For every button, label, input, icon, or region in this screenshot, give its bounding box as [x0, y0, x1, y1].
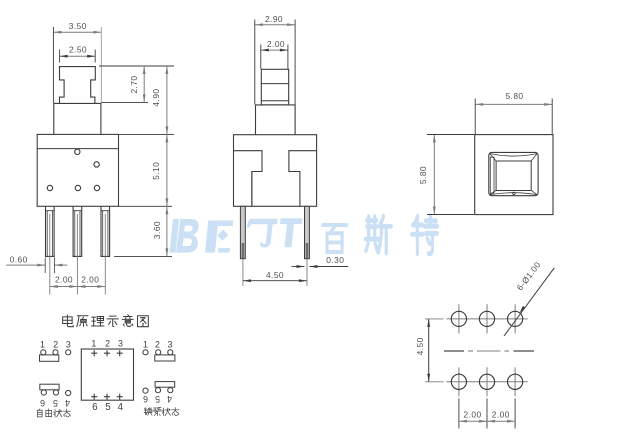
svg-text:6: 6: [40, 398, 45, 408]
svg-text:2: 2: [53, 339, 58, 349]
svg-text:1: 1: [91, 338, 96, 348]
svg-text:4: 4: [65, 398, 70, 408]
svg-text:3: 3: [168, 339, 173, 349]
svg-text:2: 2: [155, 339, 160, 349]
svg-text:5.80: 5.80: [505, 91, 523, 101]
svg-text:5.10: 5.10: [151, 162, 161, 180]
svg-text:4.50: 4.50: [415, 337, 425, 355]
svg-text:2.90: 2.90: [265, 14, 283, 24]
svg-text:2.70: 2.70: [129, 75, 139, 93]
svg-text:4: 4: [167, 394, 172, 404]
svg-text:2.00: 2.00: [267, 39, 285, 49]
svg-text:0.30: 0.30: [326, 255, 344, 265]
svg-text:2.50: 2.50: [69, 44, 87, 54]
svg-text:5.80: 5.80: [418, 166, 428, 184]
svg-text:0.60: 0.60: [10, 254, 28, 264]
svg-text:3.60: 3.60: [152, 221, 162, 239]
svg-text:2: 2: [105, 338, 110, 348]
svg-text:5: 5: [155, 394, 160, 404]
svg-text:2.00: 2.00: [492, 410, 510, 420]
svg-text:2.00: 2.00: [81, 275, 99, 285]
svg-text:4.50: 4.50: [266, 270, 284, 280]
svg-text:6-Ø1.00: 6-Ø1.00: [515, 260, 543, 293]
svg-text:5: 5: [53, 398, 58, 408]
svg-text:3: 3: [66, 339, 71, 349]
svg-text:2.00: 2.00: [464, 410, 482, 420]
svg-text:4.90: 4.90: [151, 88, 161, 106]
svg-text:3: 3: [118, 338, 123, 348]
svg-text:1: 1: [40, 339, 45, 349]
svg-text:4: 4: [118, 402, 124, 413]
svg-text:6: 6: [92, 402, 98, 413]
svg-text:2.00: 2.00: [55, 275, 73, 285]
svg-text:5: 5: [105, 402, 111, 413]
svg-text:6: 6: [143, 394, 148, 404]
svg-text:1: 1: [143, 339, 148, 349]
svg-text:3.50: 3.50: [69, 21, 87, 31]
